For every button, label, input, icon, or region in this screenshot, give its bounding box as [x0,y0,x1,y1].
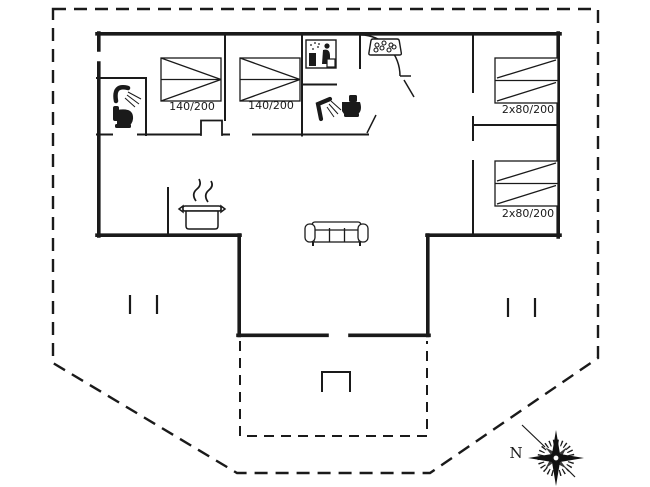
sauna-icon [306,40,336,68]
floor-plan: 140/200 140/200 2x80/200 2x80/200 N [0,0,650,487]
sofa-icon [305,222,368,246]
bed-size-label-2: 140/200 [242,100,300,112]
floor-plan-drawing [0,0,650,487]
terrace-posts [130,295,535,317]
toilet-icon-2 [342,95,361,117]
terrace-outline-dashed [240,341,427,436]
compass-north-label: N [506,447,526,459]
shower-icon [116,87,142,107]
bunk-bed-1 [495,58,558,103]
toilet-icon [113,106,133,128]
cooking-pot-icon [179,179,225,229]
double-bed-1 [161,58,221,101]
compass-rose-icon [522,425,584,486]
bunk-bed-2 [495,161,558,206]
bunk-size-label-1: 2x80/200 [494,104,562,116]
double-bed-2 [240,58,300,101]
bunk-size-label-2: 2x80/200 [494,208,562,220]
terrace-grill [322,372,350,392]
bed-size-label-1: 140/200 [163,101,221,113]
whirlpool-icon [369,39,401,55]
shower-icon-2 [318,99,341,119]
